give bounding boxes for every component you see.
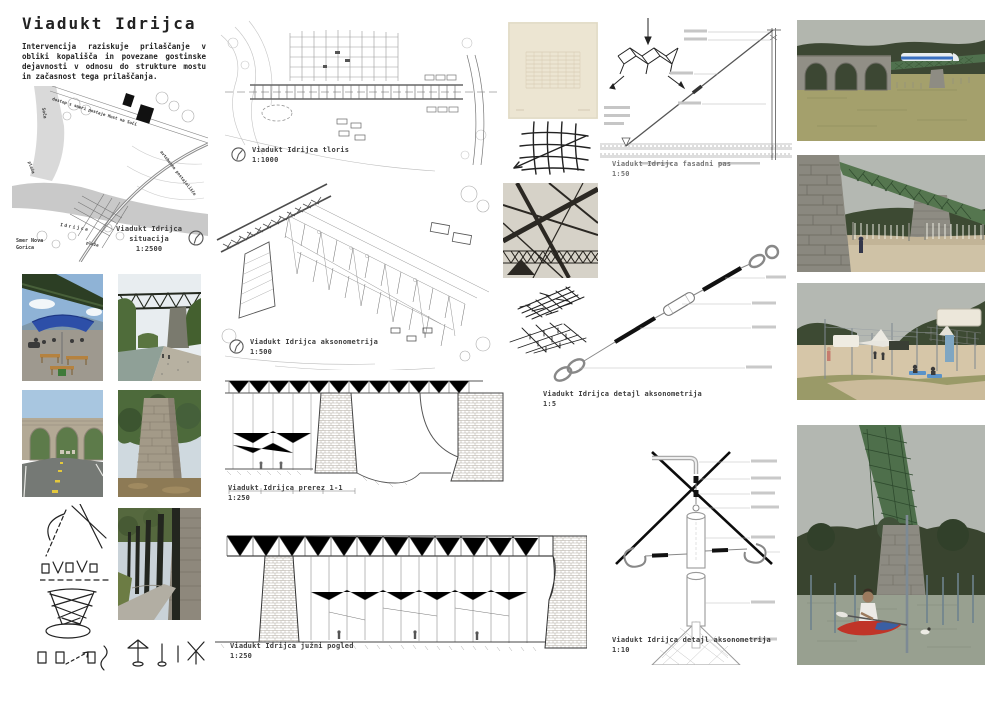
photo-viaduct-pier-walkway	[118, 508, 201, 620]
caption-elevation-scale: 1:250	[230, 652, 354, 662]
north-arrow-icon	[187, 229, 205, 247]
caption-detail10: Viadukt Idrijca detajl aksonometrija 1:1…	[612, 636, 771, 656]
caption-axon: Viadukt Idrijca aksonometrija1:500	[228, 338, 378, 358]
caption-facade: Viadukt Idrijca fasadni pas 1:50	[612, 160, 731, 180]
render-beach-under-bridge	[797, 283, 985, 400]
label-direction-2: Gorica	[16, 245, 34, 251]
photo-stone-pier-closeup	[118, 390, 201, 497]
caption-detail5-scale: 1:5	[543, 400, 702, 410]
label-direction-1: Smer Nova	[16, 238, 43, 244]
elevation-drawing	[215, 508, 587, 660]
caption-elevation-title: Viadukt Idrijca južni pogled	[230, 642, 354, 650]
sketch-warped-grid-arrow	[506, 120, 592, 178]
page-title: Viadukt Idrijca	[22, 14, 197, 33]
photo-stone-viaduct-road	[22, 390, 103, 497]
caption-section-title: Viadukt Idrijca prerez 1-1	[228, 484, 343, 492]
caption-detail5-title: Viadukt Idrijca detajl aksonometrija	[543, 390, 702, 398]
sketch-site-concept	[36, 504, 110, 560]
caption-section: Viadukt Idrijca prerez 1-1 1:250	[228, 484, 343, 504]
detail-axon-1-5-drawing	[545, 228, 790, 388]
label-beach-lower: plaža	[86, 240, 100, 248]
sketch-furniture-icons	[126, 638, 206, 668]
caption-site-plan-l1: Viadukt Idrijca	[116, 225, 182, 233]
render-train-on-viaduct	[797, 20, 985, 141]
caption-plan-title: Viadukt Idrijca tloris	[252, 146, 349, 154]
label-bus-stop: avtobusno postajališče	[159, 150, 197, 197]
render-piers-and-fence	[797, 155, 985, 272]
render-kayaker	[797, 425, 985, 665]
caption-detail10-title: Viadukt Idrijca detajl aksonometrija	[612, 636, 771, 644]
caption-axon-scale: 1:500	[250, 348, 378, 358]
caption-facade-scale: 1:50	[612, 170, 731, 180]
caption-detail5: Viadukt Idrijca detajl aksonometrija 1:5	[543, 390, 702, 410]
caption-site-plan-l2: situacija	[116, 235, 182, 245]
label-river-idrijca: Idrijca	[60, 221, 90, 233]
north-arrow-icon	[228, 338, 245, 355]
caption-section-scale: 1:250	[228, 494, 343, 504]
caption-plan: Viadukt Idrijca tloris1:1000	[230, 146, 349, 166]
caption-axon-title: Viadukt Idrijca aksonometrija	[250, 338, 378, 346]
caption-facade-title: Viadukt Idrijca fasadni pas	[612, 160, 731, 168]
facade-strip-diagram	[600, 14, 792, 166]
presentation-board: Viadukt Idrijca Intervencija raziskuje p…	[0, 0, 1000, 707]
sketch-program-diagram	[36, 644, 114, 672]
caption-elevation: Viadukt Idrijca južni pogled 1:250	[230, 642, 354, 662]
intro-paragraph: Intervencija raziskuje prilaščanje v obl…	[22, 42, 206, 83]
detail-axon-1-10-drawing	[600, 418, 790, 665]
caption-site-plan-scale: 1:2500	[116, 245, 182, 255]
sketch-pool-ellipse	[44, 622, 92, 640]
caption-plan-scale: 1:1000	[252, 156, 349, 166]
photo-truss-bridge-over-river	[118, 274, 201, 381]
sketch-piers-rhythm	[40, 558, 112, 584]
north-arrow-icon	[230, 146, 247, 163]
caption-detail10-scale: 1:10	[612, 646, 771, 656]
photo-event-under-viaduct	[22, 274, 103, 381]
caption-site-plan: Viadukt Idrijca situacija 1:2500	[116, 225, 205, 254]
reference-grid-artwork	[508, 22, 598, 119]
